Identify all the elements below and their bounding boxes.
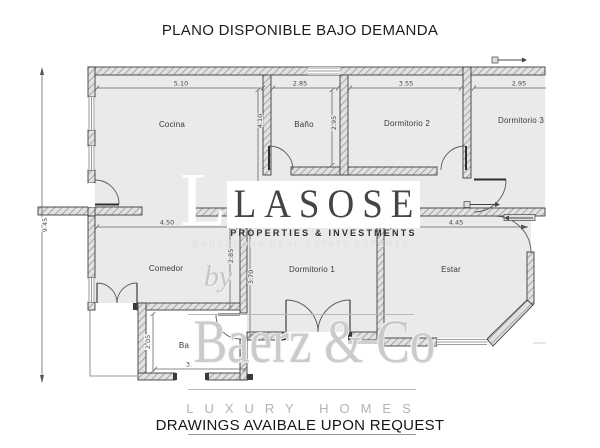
floorplan-page: PLANO DISPONIBLE BAJO DEMANDA: [0, 0, 600, 448]
room-label-dormitorio3: Dormitorio 3: [498, 116, 544, 125]
room-label-dormitorio1: Dormitorio 1: [289, 265, 335, 274]
room-label-cocina: Cocina: [159, 120, 185, 129]
dim-comedor-width: 4.50: [160, 219, 174, 227]
room-label-estar: Estar: [441, 265, 461, 274]
dim-total-depth: 9.45: [41, 218, 49, 232]
dim-ba-depth: 2.05: [144, 335, 152, 349]
room-label-dormitorio2: Dormitorio 2: [384, 119, 430, 128]
dim-estar-width: 4.45: [449, 219, 463, 227]
dim-dorm3-width: 2.95: [512, 80, 526, 88]
room-label-ba: Ba: [179, 341, 190, 350]
dim-comedor-depth: 2.85: [227, 249, 235, 263]
dim-ba-width: 3.: [186, 361, 192, 369]
dim-dorm1-depth: 3.70: [247, 270, 255, 284]
floor-plan-drawing: 5.10 2.85 3.55 2.95 4.10 2.95 4.50 4.45 …: [0, 0, 600, 448]
room-label-comedor: Comedor: [149, 264, 183, 273]
room-label-bano: Baño: [294, 120, 314, 129]
dim-cocina-width: 5.10: [174, 80, 188, 88]
footer-note: DRAWINGS AVAIBALE UPON REQUEST: [0, 417, 600, 434]
dim-dorm2-width: 3.55: [399, 80, 413, 88]
dim-cocina-depth: 4.10: [256, 114, 264, 128]
dim-bano-width: 2.85: [293, 80, 307, 88]
dim-bano-depth: 2.95: [330, 116, 338, 130]
